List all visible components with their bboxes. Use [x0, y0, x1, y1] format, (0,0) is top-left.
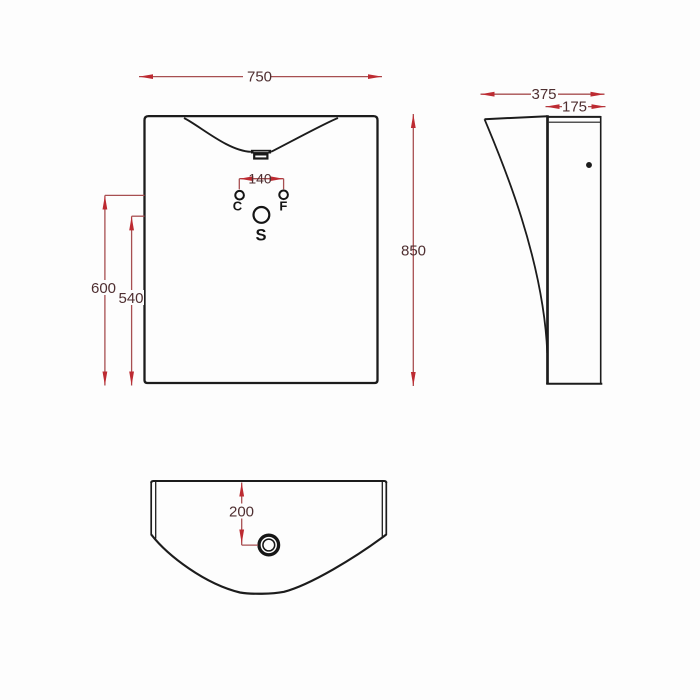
svg-text:600: 600 [91, 280, 116, 297]
svg-text:F: F [279, 199, 287, 214]
svg-text:S: S [255, 227, 266, 245]
svg-text:175: 175 [562, 99, 587, 116]
svg-text:C: C [233, 199, 243, 214]
svg-text:750: 750 [247, 69, 272, 86]
svg-text:540: 540 [118, 290, 143, 307]
svg-text:375: 375 [531, 86, 556, 103]
svg-text:140: 140 [248, 171, 272, 187]
svg-text:850: 850 [401, 242, 426, 259]
svg-text:200: 200 [229, 503, 254, 520]
